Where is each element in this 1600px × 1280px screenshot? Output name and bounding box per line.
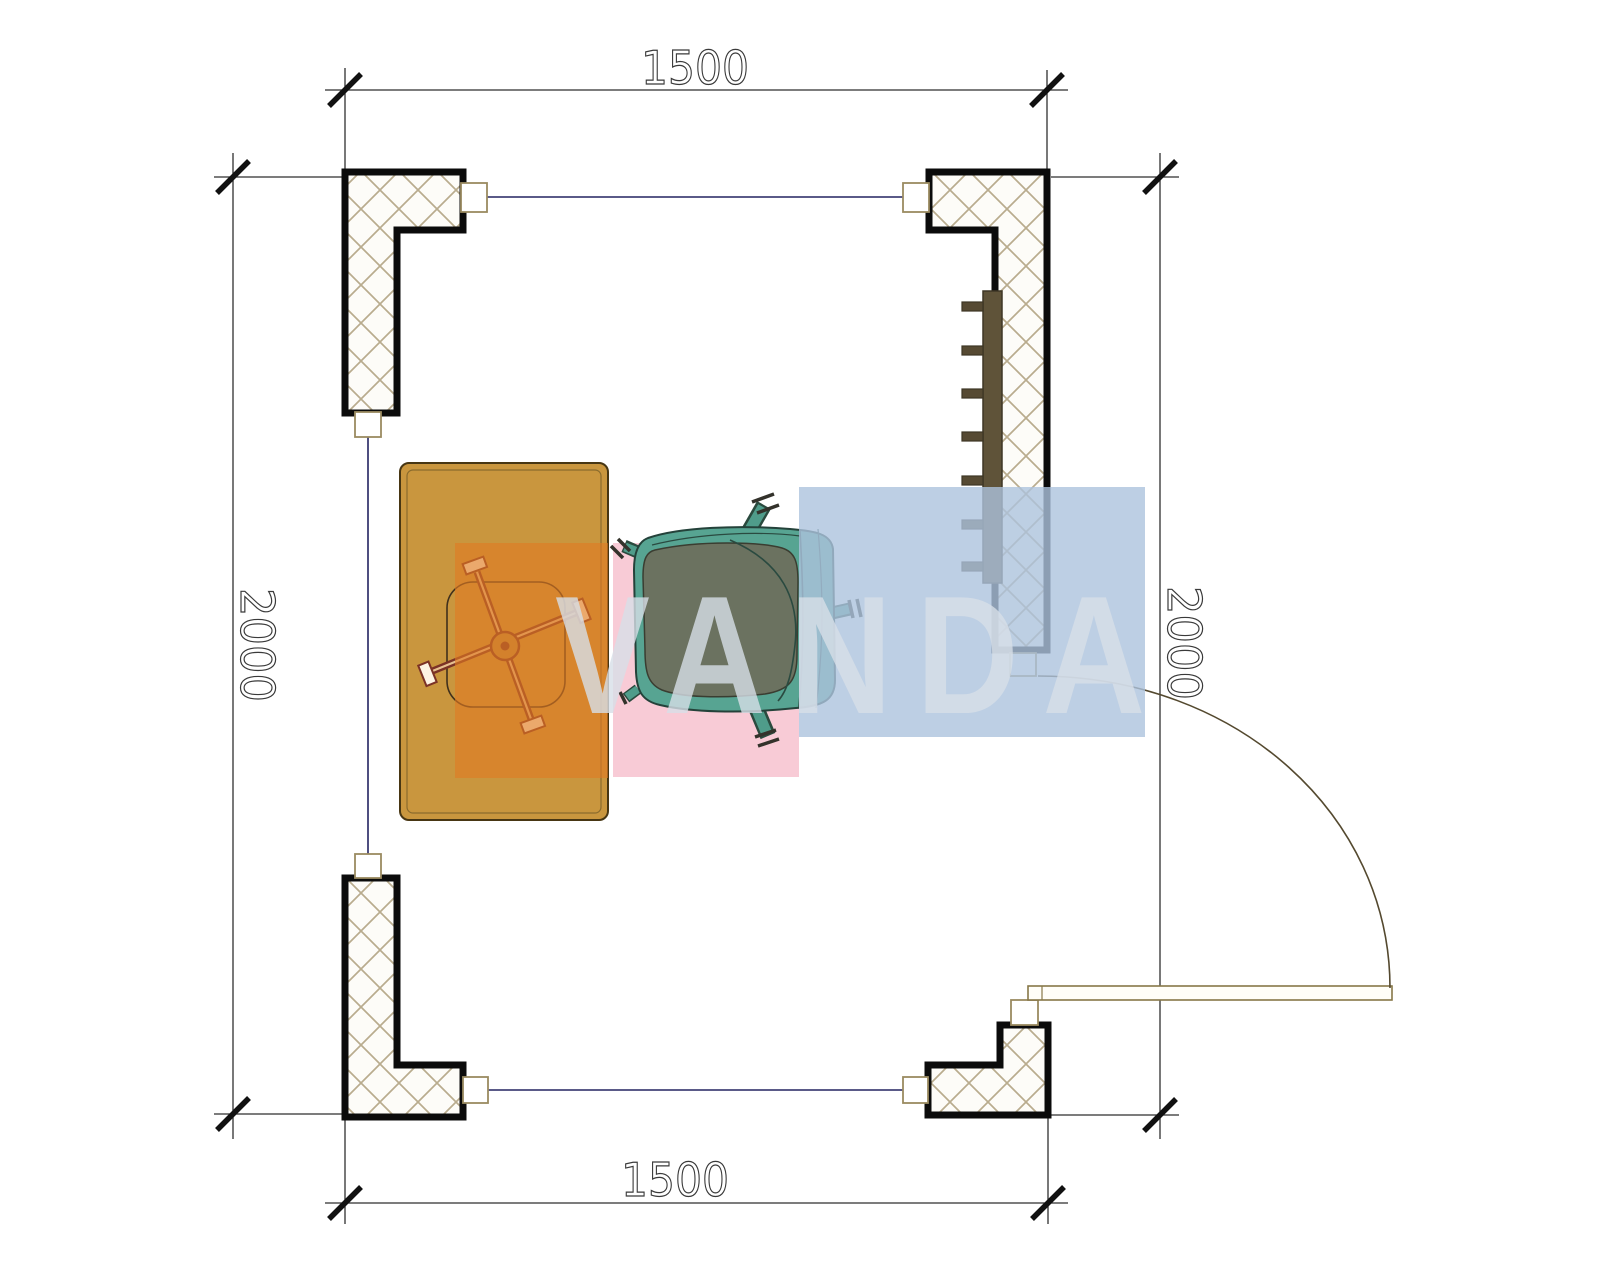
wall-nub [355, 854, 381, 878]
wall-nub [1011, 1000, 1038, 1025]
dimension-label-left: 2000 [230, 588, 284, 702]
wall-top-left [345, 172, 463, 413]
wall-bottom-left [345, 878, 463, 1117]
wall-nub [355, 412, 381, 437]
dimension-label-bottom: 1500 [621, 1153, 729, 1207]
dimension-label-top: 1500 [641, 41, 749, 95]
wall-nub [461, 183, 487, 212]
wall-nub [903, 1077, 928, 1103]
wall-bottom-right [928, 1025, 1048, 1115]
wall-nub [463, 1077, 488, 1103]
floor-plan-drawing: 1500 1500 2000 2000 [0, 0, 1600, 1280]
floor-plan-canvas: 1500 1500 2000 2000 [0, 0, 1600, 1280]
watermark-text: VANDA [555, 561, 1169, 749]
door-leaf [1028, 986, 1392, 1000]
wall-nub [903, 183, 929, 212]
